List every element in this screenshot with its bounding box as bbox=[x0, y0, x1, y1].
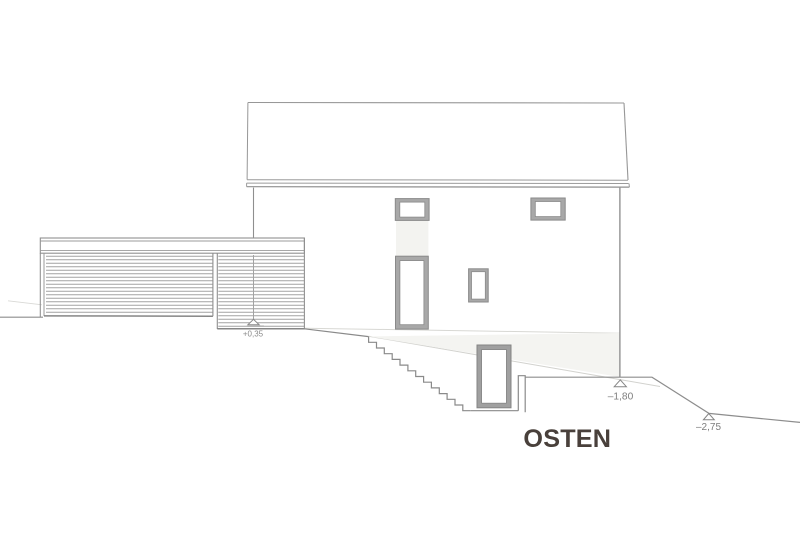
svg-text:+0,35: +0,35 bbox=[243, 329, 264, 338]
svg-text:–2,75: –2,75 bbox=[696, 422, 721, 433]
svg-text:OSTEN: OSTEN bbox=[523, 425, 611, 453]
svg-text:–1,80: –1,80 bbox=[608, 392, 634, 403]
